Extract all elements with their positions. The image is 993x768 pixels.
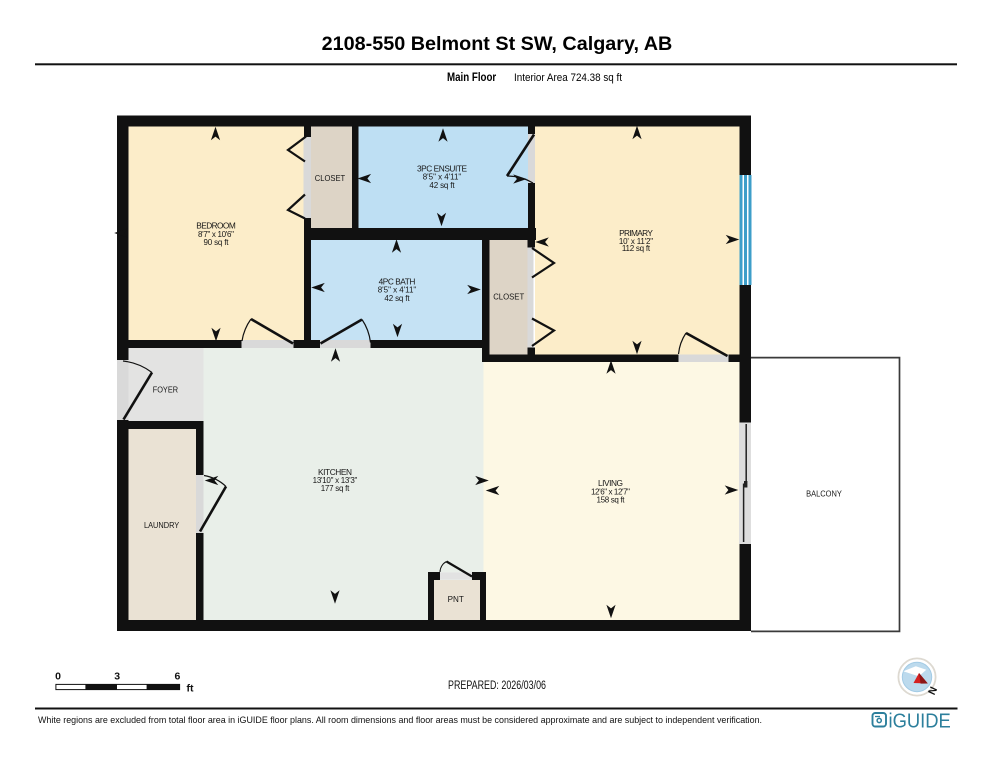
svg-text:42 sq ft: 42 sq ft <box>429 181 455 190</box>
svg-text:112 sq ft: 112 sq ft <box>622 244 651 253</box>
svg-text:White regions are excluded fro: White regions are excluded from total fl… <box>38 715 762 725</box>
svg-text:2108-550 Belmont St SW, Calgar: 2108-550 Belmont St SW, Calgary, AB <box>322 33 673 55</box>
svg-text:BALCONY: BALCONY <box>806 488 842 498</box>
svg-text:FOYER: FOYER <box>153 385 178 395</box>
svg-text:iGUIDE: iGUIDE <box>889 710 951 732</box>
svg-text:Main Floor: Main Floor <box>447 72 497 84</box>
svg-text:42 sq ft: 42 sq ft <box>384 294 410 303</box>
svg-text:PREPARED: 2026/03/06: PREPARED: 2026/03/06 <box>448 678 546 692</box>
svg-text:CLOSET: CLOSET <box>315 173 345 183</box>
svg-text:0: 0 <box>55 671 61 683</box>
svg-text:158 sq ft: 158 sq ft <box>597 496 626 505</box>
svg-text:ft: ft <box>187 683 194 695</box>
svg-text:PNT: PNT <box>448 594 464 604</box>
svg-text:3: 3 <box>114 671 120 683</box>
svg-text:Interior Area 724.38 sq ft: Interior Area 724.38 sq ft <box>514 72 622 84</box>
svg-text:6: 6 <box>174 671 180 683</box>
svg-text:CLOSET: CLOSET <box>493 292 524 302</box>
svg-text:LAUNDRY: LAUNDRY <box>144 520 180 530</box>
svg-text:90 sq ft: 90 sq ft <box>204 238 230 247</box>
svg-text:177 sq ft: 177 sq ft <box>321 484 350 493</box>
